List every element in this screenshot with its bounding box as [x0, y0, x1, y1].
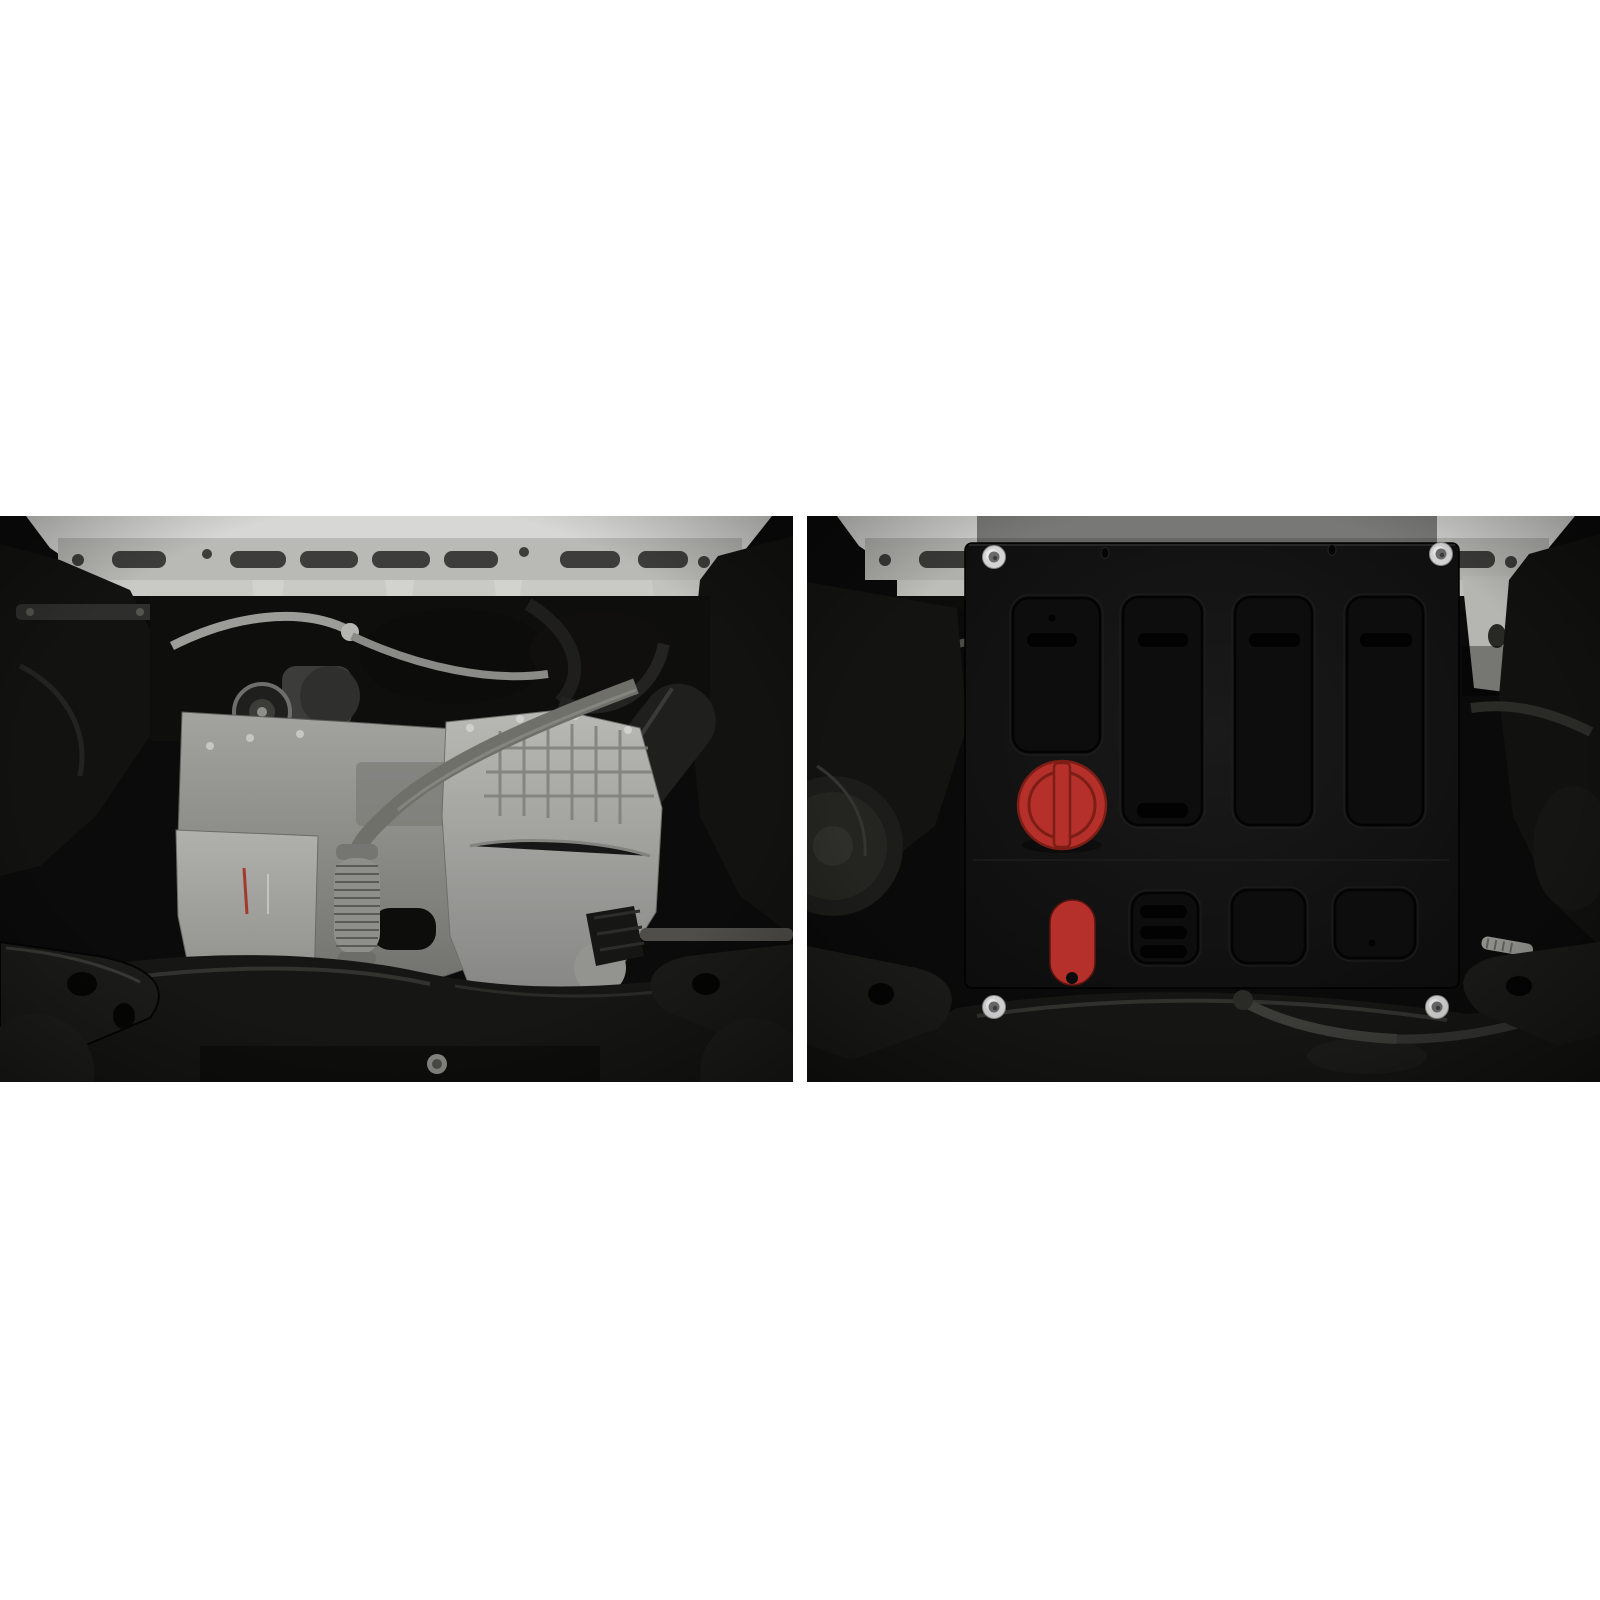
vignette	[807, 516, 1600, 1082]
panel-after	[807, 516, 1600, 1082]
panel-divider	[793, 516, 807, 1082]
underbody-photo	[0, 516, 793, 1082]
underbody-with-plate-photo	[807, 516, 1600, 1082]
product-photo-canvas	[0, 0, 1600, 1600]
panel-before	[0, 516, 793, 1082]
vignette	[0, 516, 793, 1082]
